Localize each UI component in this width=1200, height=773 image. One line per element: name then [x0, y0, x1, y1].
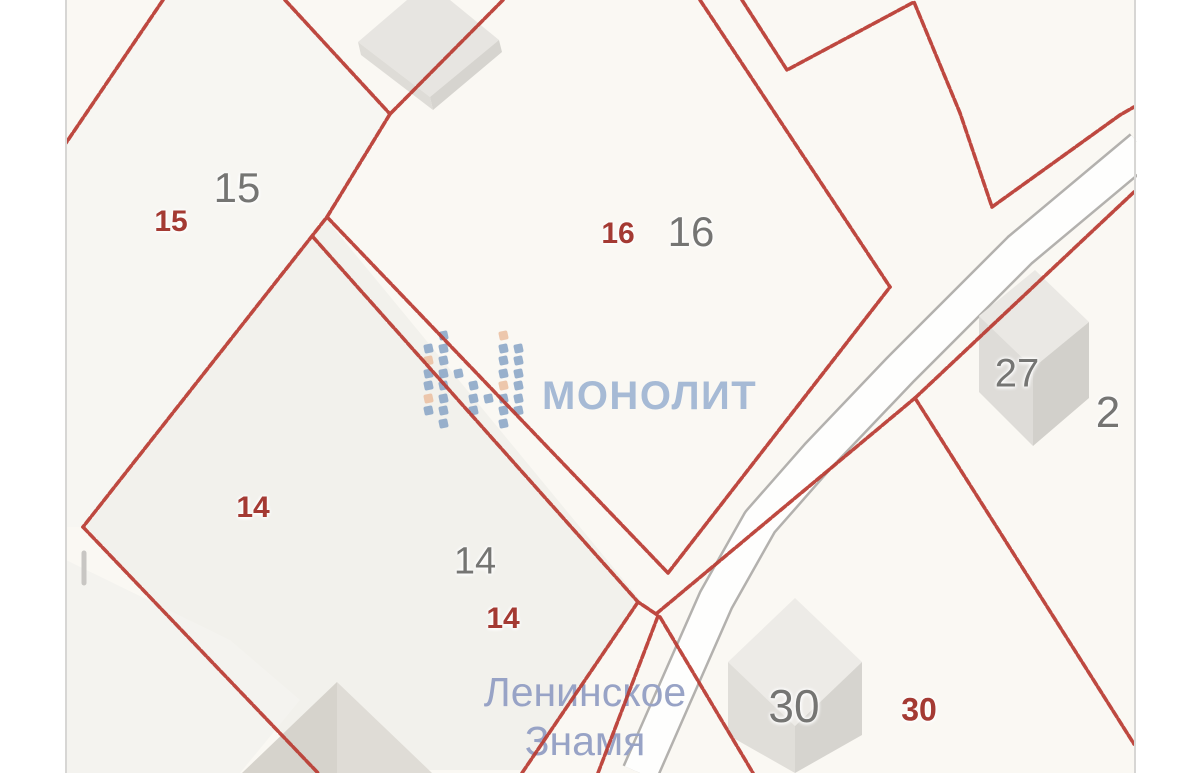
logo-square	[498, 405, 509, 416]
parcel-label-30-red: 30	[901, 692, 937, 729]
logo-square	[438, 380, 449, 391]
parcel-label-15-gray: 15	[214, 164, 261, 212]
logo-square	[468, 405, 479, 416]
logo-square	[438, 368, 449, 379]
logo-square	[468, 393, 479, 404]
place-name-line2: Знамя	[484, 717, 686, 766]
parcel-label-14-red: 14	[236, 491, 269, 525]
logo-square	[423, 343, 434, 354]
right-margin-divider	[1134, 0, 1136, 773]
left-page-margin	[0, 0, 65, 773]
logo-square	[438, 355, 449, 366]
logo-square	[438, 343, 449, 354]
logo-square	[453, 368, 464, 379]
brand-watermark-text: МОНОЛИТ	[542, 374, 757, 419]
logo-square	[483, 393, 494, 404]
logo-square	[438, 405, 449, 416]
parcel-label-14-red: 14	[486, 602, 519, 636]
logo-square	[423, 368, 434, 379]
logo-square	[513, 355, 524, 366]
parcel-label-14-gray: 14	[454, 541, 496, 584]
logo-square	[513, 380, 524, 391]
logo-square	[423, 405, 434, 416]
logo-square	[498, 330, 509, 341]
logo-square	[498, 380, 509, 391]
parcel-label-27-gray: 27	[995, 352, 1040, 397]
logo-square	[513, 368, 524, 379]
logo-square	[513, 393, 524, 404]
logo-square	[498, 355, 509, 366]
parcel-label-15-red: 15	[154, 205, 187, 239]
logo-square	[423, 380, 434, 391]
parcel-label-2-gray: 2	[1096, 388, 1120, 438]
logo-square	[513, 343, 524, 354]
logo-square	[423, 355, 434, 366]
parcel-label-16-red: 16	[601, 217, 634, 251]
right-page-margin	[1137, 0, 1200, 773]
map-viewport[interactable]: МОНОЛИТ Ленинское Знамя 1515161614141427…	[0, 0, 1200, 773]
logo-square	[498, 393, 509, 404]
left-margin-divider	[65, 0, 67, 773]
place-name-label: Ленинское Знамя	[484, 668, 686, 766]
logo-square	[438, 418, 449, 429]
logo-square	[498, 418, 509, 429]
parcel-label-30-gray: 30	[768, 679, 819, 733]
logo-square	[468, 380, 479, 391]
parcel-label-16-gray: 16	[668, 208, 715, 256]
logo-square	[498, 368, 509, 379]
logo-square	[498, 343, 509, 354]
logo-square	[438, 330, 449, 341]
place-name-line1: Ленинское	[484, 668, 686, 717]
logo-square	[438, 393, 449, 404]
logo-square	[423, 393, 434, 404]
logo-square	[513, 405, 524, 416]
